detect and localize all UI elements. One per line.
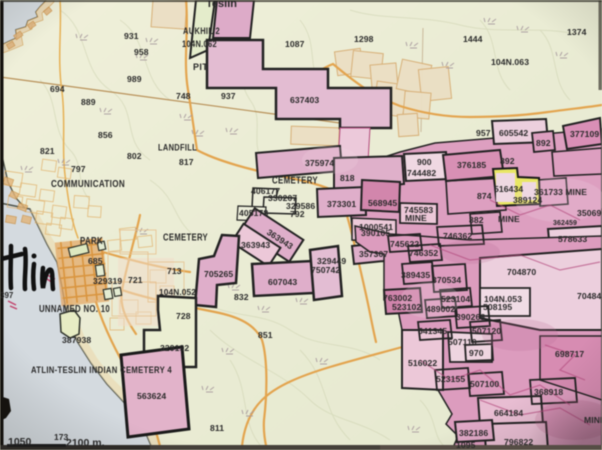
svg-text:605542: 605542: [499, 128, 528, 138]
svg-text:1444: 1444: [463, 34, 483, 44]
svg-text:507120: 507120: [472, 326, 501, 336]
svg-text:1087: 1087: [285, 39, 305, 49]
svg-text:104N.052: 104N.052: [159, 287, 196, 297]
svg-text:357307: 357307: [359, 249, 388, 259]
svg-text:882: 882: [469, 215, 484, 225]
svg-text:508195: 508195: [483, 302, 512, 312]
svg-text:329192: 329192: [160, 343, 189, 353]
svg-text:821: 821: [40, 146, 55, 156]
svg-text:523104: 523104: [441, 294, 470, 304]
svg-text:541345: 541345: [418, 326, 447, 336]
svg-text:802: 802: [127, 151, 142, 161]
svg-text:578633: 578633: [558, 234, 587, 244]
svg-text:507110: 507110: [448, 337, 477, 347]
svg-text:389124: 389124: [513, 195, 542, 205]
svg-text:698717: 698717: [555, 349, 584, 359]
svg-text:ATLIN-TESLIN INDIAN CEMETERY 4: ATLIN-TESLIN INDIAN CEMETERY 4: [31, 365, 172, 376]
svg-text:746352: 746352: [409, 248, 438, 258]
svg-text:329319: 329319: [93, 276, 122, 286]
svg-text:CEMETERY: CEMETERY: [163, 233, 208, 244]
svg-text:744482: 744482: [407, 168, 436, 178]
svg-text:523155: 523155: [436, 374, 465, 384]
svg-text:387938: 387938: [62, 335, 91, 345]
svg-text:637403: 637403: [290, 95, 319, 105]
svg-text:892: 892: [536, 138, 551, 148]
svg-text:405178: 405178: [239, 208, 268, 218]
svg-text:664184: 664184: [494, 408, 523, 418]
svg-text:MINE: MINE: [498, 214, 520, 224]
svg-text:1000541: 1000541: [359, 222, 393, 232]
svg-text:970: 970: [469, 348, 484, 358]
svg-text:957: 957: [476, 128, 491, 138]
svg-text:377109: 377109: [570, 129, 599, 139]
svg-text:889: 889: [81, 97, 96, 107]
svg-text:704870: 704870: [507, 267, 536, 277]
svg-text:797: 797: [71, 164, 86, 174]
svg-text:685: 685: [88, 256, 103, 266]
svg-text:792: 792: [290, 209, 305, 219]
svg-text:811: 811: [210, 423, 224, 433]
svg-text:1374: 1374: [567, 27, 587, 37]
svg-text:382186: 382186: [459, 428, 488, 438]
svg-text:958: 958: [134, 47, 149, 57]
svg-text:375974: 375974: [305, 158, 334, 168]
svg-text:713: 713: [167, 266, 182, 276]
svg-text:694: 694: [50, 84, 65, 94]
svg-text:MINE: MINE: [584, 415, 602, 425]
svg-text:818: 818: [340, 173, 355, 183]
svg-text:489002: 489002: [426, 304, 455, 314]
svg-text:363943: 363943: [241, 240, 270, 250]
svg-text:817: 817: [179, 157, 194, 167]
svg-text:1050: 1050: [8, 436, 32, 448]
svg-text:728: 728: [176, 311, 191, 321]
svg-text:373301: 373301: [327, 199, 356, 209]
svg-text:1298: 1298: [354, 34, 374, 44]
svg-text:563624: 563624: [137, 391, 166, 401]
svg-text:796822: 796822: [504, 437, 533, 447]
svg-text:AUKHIL 2: AUKHIL 2: [183, 26, 220, 36]
svg-text:892: 892: [500, 156, 515, 166]
svg-text:856: 856: [98, 130, 113, 140]
svg-text:70484: 70484: [577, 291, 602, 301]
svg-text:397: 397: [0, 291, 14, 300]
svg-text:COMMUNICATION: COMMUNICATION: [51, 178, 125, 190]
svg-text:516434: 516434: [494, 184, 523, 194]
svg-text:748: 748: [176, 91, 191, 101]
svg-text:Teslin: Teslin: [206, 0, 237, 10]
svg-text:832: 832: [234, 292, 249, 302]
svg-text:35069: 35069: [577, 208, 602, 218]
svg-text:UNNAMED NO. 10: UNNAMED NO. 10: [39, 304, 110, 315]
svg-text:362459: 362459: [553, 220, 577, 227]
svg-text:389435: 389435: [401, 270, 430, 280]
svg-text:937: 937: [221, 91, 236, 101]
svg-text:568945: 568945: [368, 198, 397, 208]
svg-text:746362: 746362: [443, 231, 472, 241]
svg-text:989: 989: [127, 74, 142, 84]
svg-text:516022: 516022: [408, 358, 437, 368]
svg-text:390268: 390268: [456, 312, 485, 322]
svg-text:CEMETERY: CEMETERY: [272, 176, 318, 187]
svg-text:104N.063: 104N.063: [491, 57, 529, 67]
svg-text:931: 931: [124, 31, 139, 41]
svg-text:PARK: PARK: [80, 236, 103, 247]
svg-text:LANDFILL: LANDFILL: [158, 143, 197, 154]
svg-text:750742: 750742: [311, 265, 340, 275]
svg-text:900: 900: [417, 157, 432, 167]
svg-text:851: 851: [258, 330, 273, 340]
svg-text:PIT: PIT: [193, 62, 208, 72]
svg-text:874: 874: [477, 191, 492, 201]
svg-text:721: 721: [128, 275, 143, 285]
svg-text:523102: 523102: [392, 302, 421, 312]
svg-text:607043: 607043: [268, 277, 297, 287]
svg-text:376185: 376185: [457, 160, 486, 170]
svg-text:104N.062: 104N.062: [182, 39, 217, 49]
svg-text:705265: 705265: [204, 269, 233, 279]
svg-text:370534: 370534: [432, 275, 461, 285]
svg-text:1095: 1095: [456, 440, 476, 450]
svg-text:745583: 745583: [404, 205, 433, 215]
svg-text:507100: 507100: [470, 379, 499, 389]
svg-text:368918: 368918: [534, 387, 563, 397]
svg-text:2100 m.: 2100 m.: [66, 437, 105, 449]
